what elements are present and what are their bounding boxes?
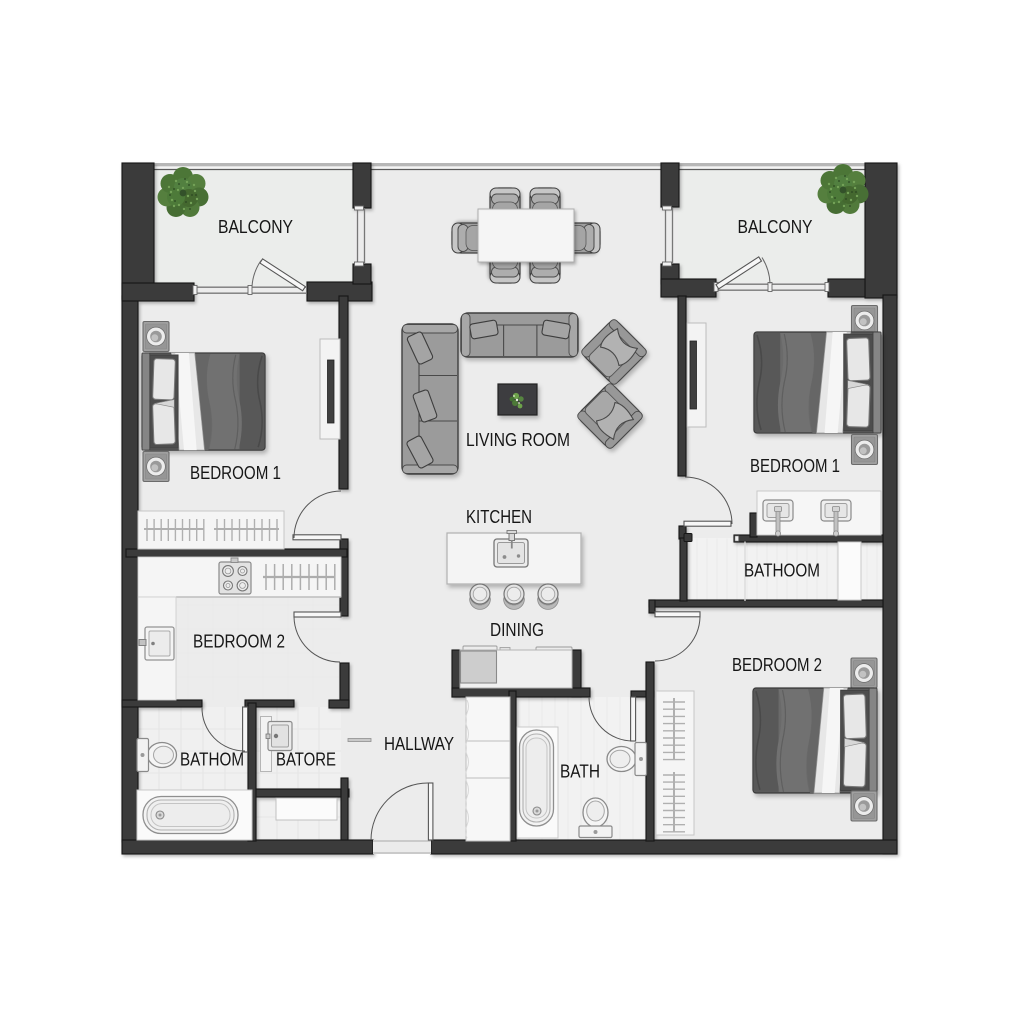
svg-text:BALCONY: BALCONY <box>738 217 813 237</box>
svg-text:LIVING ROOM: LIVING ROOM <box>466 430 570 450</box>
svg-text:HALLWAY: HALLWAY <box>384 734 454 754</box>
svg-text:BALCONY: BALCONY <box>218 217 293 237</box>
svg-text:BEDROOM 1: BEDROOM 1 <box>750 456 840 476</box>
svg-text:BATHOM: BATHOM <box>180 750 244 770</box>
svg-text:BATORE: BATORE <box>276 750 336 770</box>
svg-text:BEDROOM 2: BEDROOM 2 <box>193 632 285 652</box>
svg-text:BATH: BATH <box>560 762 600 782</box>
svg-text:DINING: DINING <box>490 620 544 640</box>
svg-text:BEDROOM 2: BEDROOM 2 <box>732 655 822 675</box>
svg-text:BEDROOM 1: BEDROOM 1 <box>190 463 281 483</box>
svg-text:KITCHEN: KITCHEN <box>466 507 532 527</box>
svg-text:BATHOOM: BATHOOM <box>744 561 820 581</box>
